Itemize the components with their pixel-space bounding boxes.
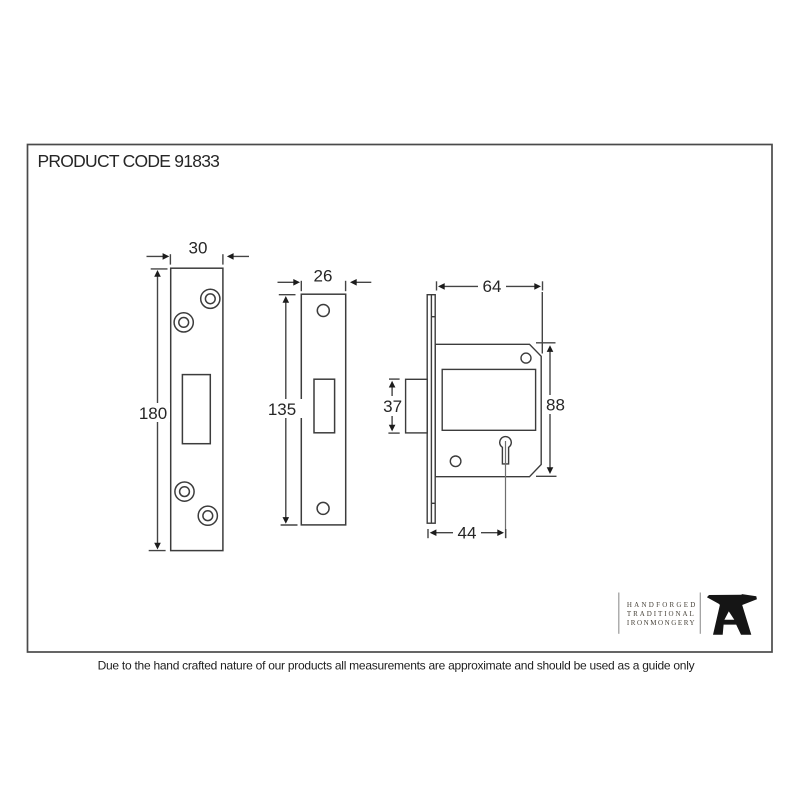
svg-text:135: 135 (268, 400, 296, 419)
svg-text:HANDFORGED: HANDFORGED (627, 601, 698, 609)
svg-text:PRODUCT CODE 91833: PRODUCT CODE 91833 (38, 151, 220, 171)
svg-text:37: 37 (383, 397, 402, 416)
svg-text:88: 88 (546, 396, 565, 415)
svg-text:Due to the hand crafted nature: Due to the hand crafted nature of our pr… (98, 659, 695, 673)
svg-text:IRONMONGERY: IRONMONGERY (627, 619, 696, 627)
svg-text:30: 30 (189, 239, 208, 258)
svg-text:44: 44 (458, 524, 477, 543)
svg-text:TRADITIONAL: TRADITIONAL (627, 610, 696, 618)
svg-text:26: 26 (314, 267, 333, 286)
svg-text:64: 64 (483, 277, 502, 296)
svg-text:180: 180 (139, 404, 167, 423)
